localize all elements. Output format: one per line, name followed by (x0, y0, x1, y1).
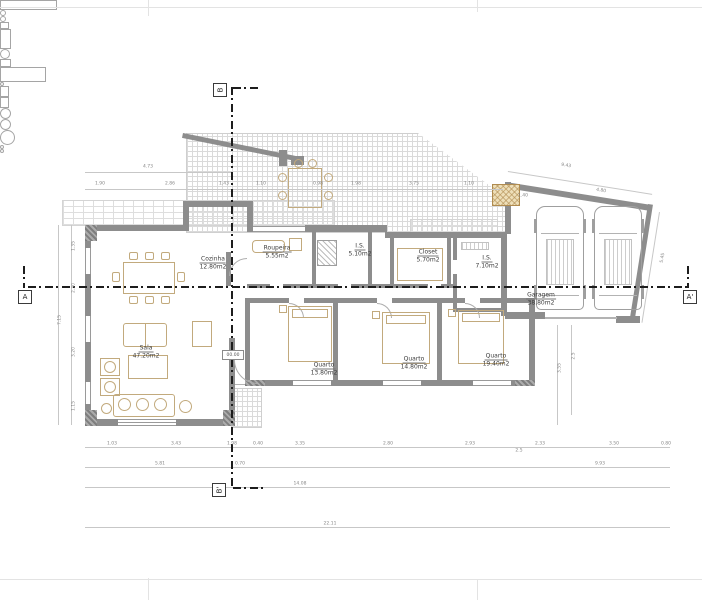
dimension-label: 0.80 (661, 442, 671, 447)
section-marker-b: B (213, 83, 227, 97)
dimension-label: 1.43 (219, 182, 229, 187)
room-name: Sala (139, 345, 154, 353)
labels-layer: Cozinha12.80m2Roupeira5.55m2I.S.5.10m2Cl… (0, 0, 702, 600)
room-label-closet: Closet5.70m2 (416, 249, 439, 264)
dimension-label: 0.70 (235, 462, 245, 467)
section-marker-letter: B' (215, 487, 223, 494)
section-marker-b-prime: B' (212, 483, 226, 497)
dimension-label: 14.08 (294, 482, 307, 487)
room-label-quarto: Quarto19.40m2 (483, 353, 510, 368)
room-name: Closet (418, 249, 439, 257)
room-name: Garagem (526, 292, 556, 300)
room-name: Roupeira (263, 245, 292, 253)
dimension-label: 5.45 (660, 253, 667, 264)
dimension-label: 3.20 (72, 347, 77, 357)
room-area: 38.80m2 (528, 300, 555, 307)
section-marker-letter: B (216, 88, 224, 93)
section-marker-a: A (18, 290, 32, 304)
dimension-label: 3.43 (171, 442, 181, 447)
room-label-quarto: Quarto13.80m2 (311, 362, 338, 377)
dimension-label: 3.75 (409, 182, 419, 187)
room-name: Cozinha (200, 256, 226, 264)
dimension-label: 2.5 (515, 449, 522, 454)
room-name: I.S. (481, 255, 492, 263)
dimension-label: 2.30 (72, 283, 77, 293)
room-label-garagem: Garagem38.80m2 (526, 292, 556, 307)
room-area: 14.80m2 (401, 364, 428, 371)
floor-plan-sheet: 00.00 Cozinha12.80m2Roupeira5.55m2I.S.5.… (0, 0, 702, 600)
dimension-label: 5.81 (155, 462, 165, 467)
section-marker-letter: A (23, 293, 28, 301)
dimension-label: 2.86 (165, 182, 175, 187)
dimension-label: 2.33 (535, 442, 545, 447)
section-marker-letter: A' (687, 293, 694, 301)
dimension-label: 1.90 (95, 182, 105, 187)
room-name: I.S. (354, 243, 365, 251)
dimension-label: 1.98 (227, 442, 237, 447)
dimension-label: 0.98 (313, 182, 323, 187)
room-area: 13.80m2 (311, 370, 338, 377)
dimension-label: 1.10 (464, 182, 474, 187)
dimension-label: 9.43 (561, 163, 572, 170)
room-name: Quarto (485, 353, 508, 361)
room-area: 5.70m2 (416, 257, 439, 264)
room-name: Quarto (313, 362, 336, 370)
dimension-label: 9.93 (595, 462, 605, 467)
dimension-label: 1.35 (72, 241, 77, 251)
room-label-cozinha: Cozinha12.80m2 (200, 256, 227, 271)
room-label-sala: Sala47.20m2 (133, 345, 160, 360)
room-label-is: I.S.7.10m2 (475, 255, 498, 270)
dimension-label: 7.15 (58, 315, 63, 325)
dimension-label: 2.5 (572, 352, 577, 359)
level-marker: 00.00 (222, 350, 244, 360)
room-area: 19.40m2 (483, 361, 510, 368)
room-area: 7.10m2 (475, 263, 498, 270)
room-area: 5.10m2 (348, 251, 371, 258)
dimension-label: 1.15 (72, 401, 77, 411)
room-area: 12.80m2 (200, 264, 227, 271)
dimension-label: 0.40 (253, 442, 263, 447)
room-label-quarto: Quarto14.80m2 (401, 356, 428, 371)
dimension-label: 4.80 (596, 188, 607, 195)
dimension-label: 3.50 (609, 442, 619, 447)
dimension-label: 22.11 (324, 522, 337, 527)
dimension-label: 1.40 (518, 194, 528, 199)
room-label-roupeira: Roupeira5.55m2 (263, 245, 292, 260)
dimension-label: 1.98 (351, 182, 361, 187)
room-label-is: I.S.5.10m2 (348, 243, 371, 258)
dimension-label: 2.80 (383, 442, 393, 447)
room-area: 47.20m2 (133, 353, 160, 360)
room-name: Quarto (403, 356, 426, 364)
dimension-label: 3.55 (558, 363, 563, 373)
dimension-label: 1.03 (107, 442, 117, 447)
dimension-label: 3.35 (295, 442, 305, 447)
dimension-label: 2.93 (465, 442, 475, 447)
dimension-label: 4.73 (143, 165, 153, 170)
section-marker-a-prime: A' (683, 290, 697, 304)
dimension-label: 1.10 (256, 182, 266, 187)
room-area: 5.55m2 (265, 253, 288, 260)
